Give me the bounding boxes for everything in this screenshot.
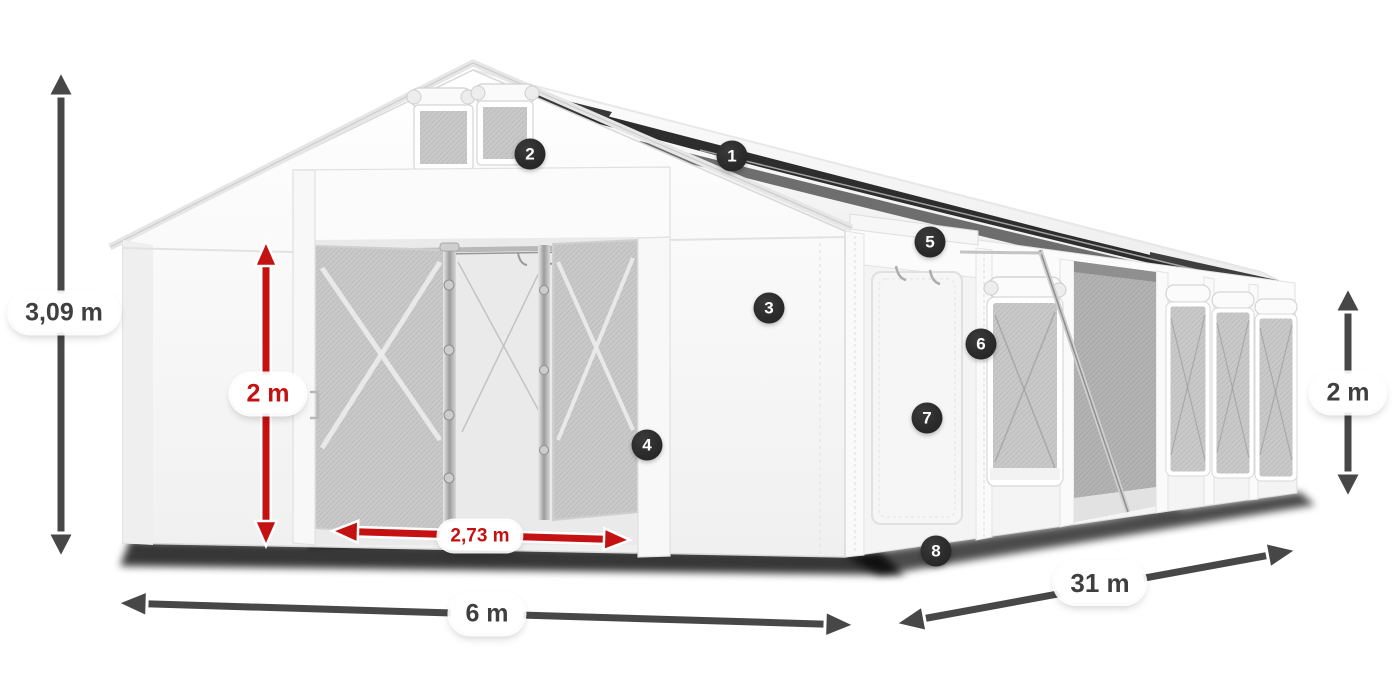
width-label: 6 m [450, 595, 523, 634]
side-door [872, 266, 962, 524]
side-window-2 [1166, 285, 1210, 476]
entrance-width-label: 2,73 m [439, 522, 520, 551]
side-height-label: 2 m [1311, 374, 1384, 413]
tent-illustration [0, 0, 1400, 700]
gable-vent-left [407, 88, 475, 170]
callout-8[interactable]: 8 [921, 536, 952, 567]
side-window-4 [1255, 299, 1297, 481]
callout-2[interactable]: 2 [515, 139, 546, 170]
callout-5[interactable]: 5 [915, 227, 946, 258]
front-facade [110, 63, 852, 557]
side-window-1 [984, 277, 1066, 486]
callout-1[interactable]: 1 [717, 141, 748, 172]
side-window-3 [1212, 292, 1254, 478]
callout-7[interactable]: 7 [912, 403, 943, 434]
total-height-label: 3,09 m [10, 294, 118, 333]
callout-6[interactable]: 6 [966, 329, 997, 360]
length-label: 31 m [1055, 563, 1144, 603]
entrance [293, 167, 670, 557]
callout-4[interactable]: 4 [632, 430, 663, 461]
entrance-height-label: 2 m [231, 375, 304, 414]
callout-3[interactable]: 3 [754, 293, 785, 324]
tent-dimension-diagram: 3,09 m 6 m 31 m 2 m 2 m 2,73 m 1 2 3 4 5… [0, 0, 1400, 700]
